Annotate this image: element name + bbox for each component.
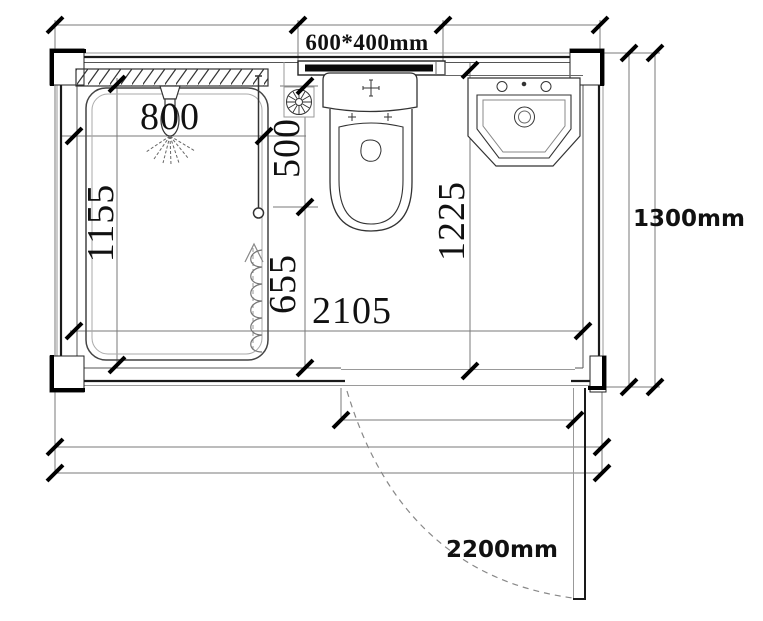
dim-label-overall-depth: 1300mm: [633, 206, 745, 232]
dim-label-shower-upper: 500: [265, 118, 309, 178]
dim-label-shower-offset: 800: [140, 95, 200, 139]
floor-plan-canvas: 600*400mm 800 1155 500 655 2105 1225 130…: [0, 0, 763, 621]
dim-label-overall-width: 2200mm: [446, 537, 558, 563]
faucet-hole: [541, 82, 551, 92]
toilet-icon: [323, 73, 417, 231]
faucet-hole: [497, 82, 507, 92]
dim-label-shower-lower: 655: [261, 254, 305, 314]
dim-label-window: 600*400mm: [305, 30, 428, 56]
hatched-ledge: [76, 69, 268, 86]
dim-label-interior-width: 2105: [312, 289, 392, 333]
sink-icon: [468, 78, 580, 166]
dim-label-left-interior: 1155: [79, 184, 123, 263]
door-swing-arc: [347, 391, 573, 598]
toilet-tank: [323, 73, 417, 112]
dim-label-right-interior: 1225: [430, 181, 474, 261]
